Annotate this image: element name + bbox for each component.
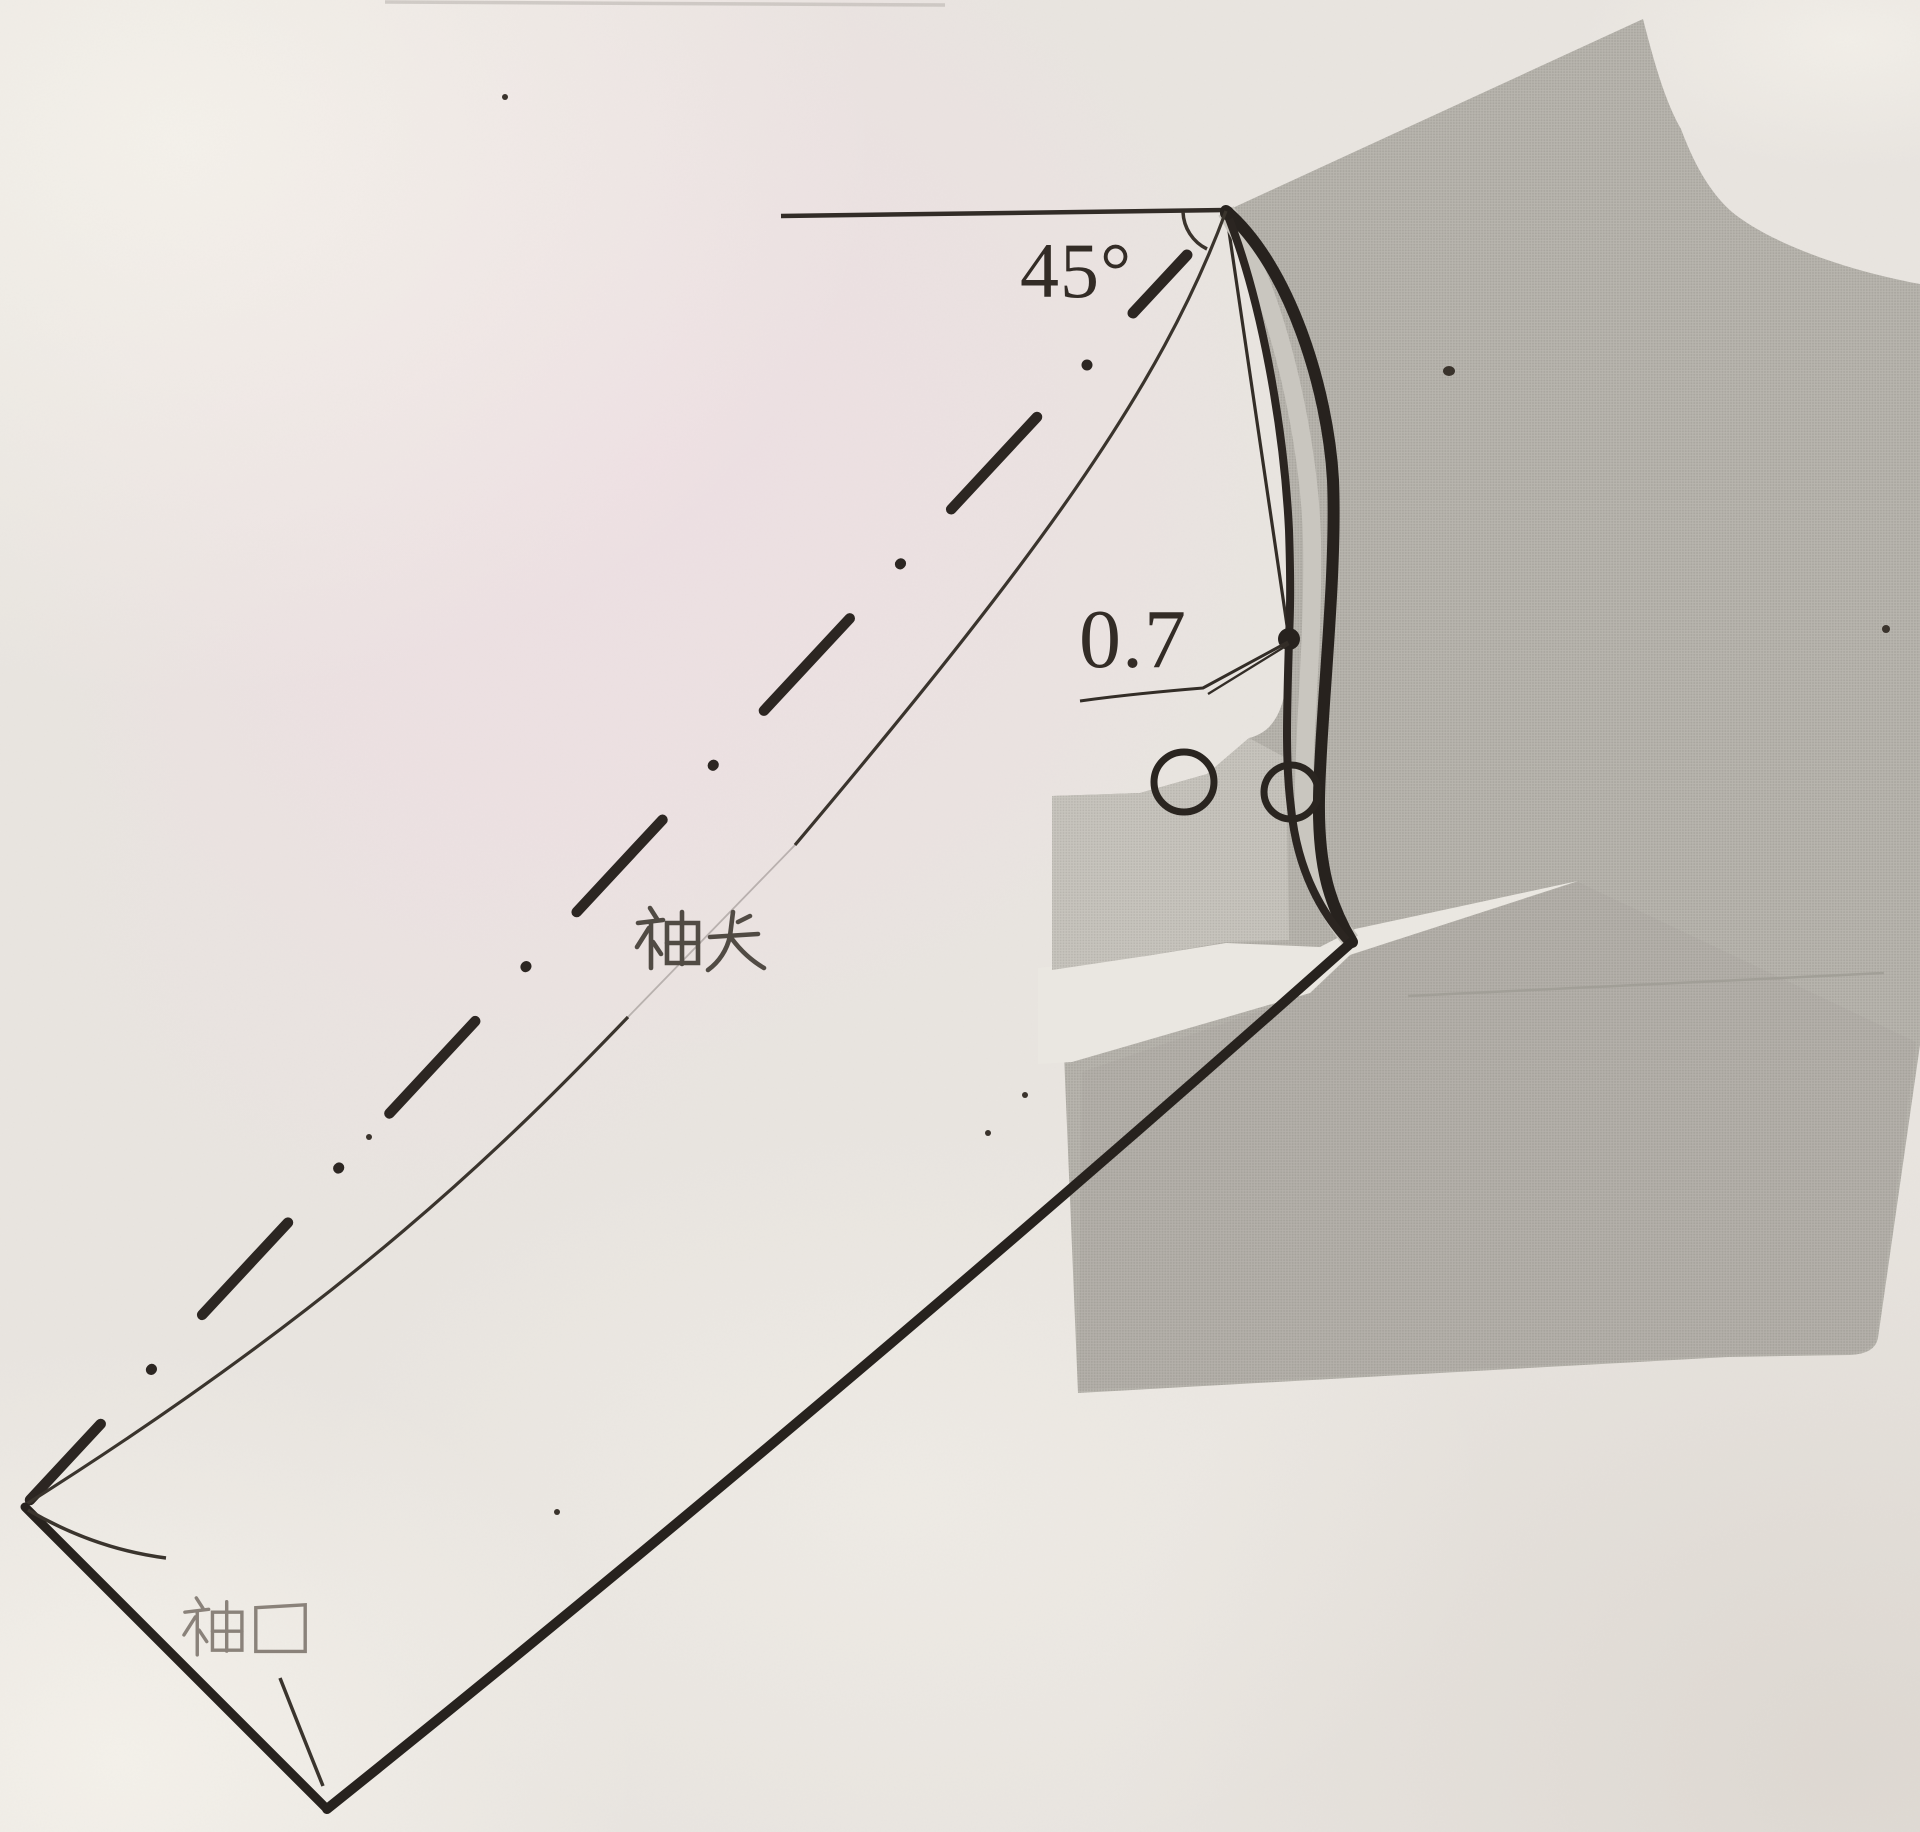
svg-text:45°: 45° bbox=[1020, 227, 1132, 314]
svg-text:0.7: 0.7 bbox=[1079, 593, 1187, 686]
